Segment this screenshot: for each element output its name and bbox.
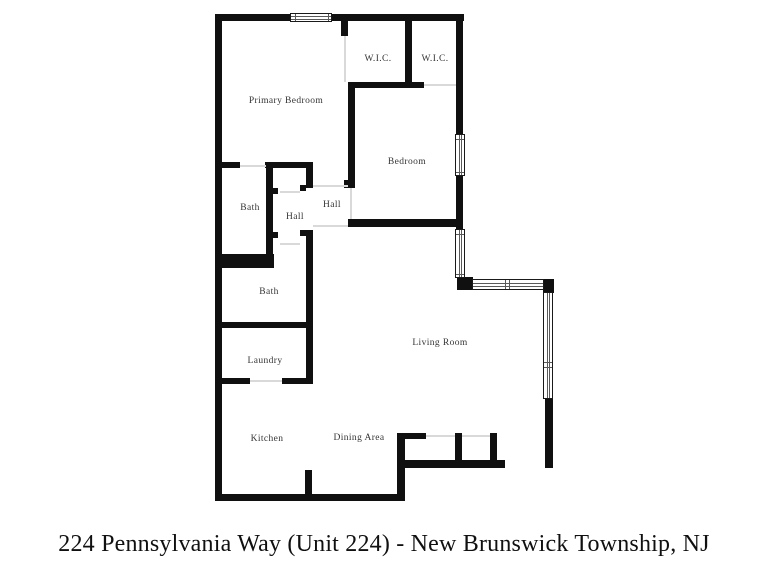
wall-segment <box>215 322 313 328</box>
room-label-bedroom: Bedroom <box>388 157 426 167</box>
door-threshold <box>250 380 282 382</box>
door-threshold <box>344 36 346 82</box>
door-threshold <box>240 165 266 167</box>
room-label-living-room: Living Room <box>412 338 467 348</box>
window-pane-line <box>295 14 296 21</box>
wall-segment <box>305 470 312 496</box>
window <box>290 13 332 22</box>
wall-segment <box>457 277 473 290</box>
window-pane-line <box>473 283 543 284</box>
wall-segment <box>341 21 348 36</box>
window-pane-line <box>456 139 464 140</box>
window-pane-line <box>328 14 329 21</box>
door-threshold <box>313 225 348 227</box>
window-pane-line <box>549 293 550 398</box>
wall-segment <box>273 232 278 238</box>
floorplan-canvas: Primary BedroomW.I.C.W.I.C.BedroomBathHa… <box>0 0 768 576</box>
wall-segment <box>545 398 553 468</box>
wall-segment <box>300 230 306 236</box>
wall-segment <box>306 230 313 384</box>
window-pane-line <box>473 286 543 287</box>
window-pane-line <box>456 234 464 235</box>
wall-segment <box>348 82 424 88</box>
window-pane-line <box>456 172 464 173</box>
window-pane-line <box>459 135 460 175</box>
window <box>543 292 553 399</box>
room-label-primary-bedroom: Primary Bedroom <box>249 96 323 106</box>
door-threshold <box>426 435 455 437</box>
window <box>472 279 544 290</box>
wall-segment <box>215 14 222 501</box>
window-pane-line <box>509 280 510 289</box>
wall-segment <box>543 279 554 293</box>
wall-segment <box>490 433 497 462</box>
room-label-w-i-c: W.I.C. <box>364 54 391 64</box>
window-pane-line <box>505 280 506 289</box>
wall-segment <box>300 185 306 191</box>
window-pane-line <box>547 293 548 398</box>
address-caption: 224 Pennsylvania Way (Unit 224) - New Br… <box>0 531 768 558</box>
wall-segment <box>215 378 250 384</box>
room-label-hall: Hall <box>323 200 341 210</box>
wall-segment <box>273 188 278 194</box>
room-label-kitchen: Kitchen <box>251 434 284 444</box>
room-label-w-i-c: W.I.C. <box>421 54 448 64</box>
window-pane-line <box>291 19 331 20</box>
wall-segment <box>215 14 464 21</box>
wall-segment <box>222 254 274 268</box>
wall-segment <box>348 82 355 188</box>
wall-segment <box>266 162 273 256</box>
wall-segment <box>306 162 313 188</box>
room-label-dining-area: Dining Area <box>333 433 384 443</box>
window-pane-line <box>461 230 462 277</box>
room-label-hall: Hall <box>286 212 304 222</box>
door-threshold <box>313 185 348 187</box>
door-threshold <box>350 188 352 219</box>
room-label-bath: Bath <box>240 203 260 213</box>
window-pane-line <box>291 16 331 17</box>
window-pane-line <box>544 362 552 363</box>
wall-segment <box>405 21 412 85</box>
wall-segment <box>402 460 505 468</box>
door-threshold <box>462 435 490 437</box>
window-pane-line <box>459 230 460 277</box>
window-pane-line <box>456 274 464 275</box>
wall-segment <box>397 433 426 439</box>
window <box>455 134 465 176</box>
wall-segment <box>348 219 463 227</box>
window-pane-line <box>461 135 462 175</box>
door-threshold <box>280 191 300 193</box>
floorplan-page: Primary BedroomW.I.C.W.I.C.BedroomBathHa… <box>0 0 768 576</box>
room-label-laundry: Laundry <box>248 356 283 366</box>
window <box>455 229 465 278</box>
door-threshold <box>424 84 456 86</box>
wall-segment <box>282 378 313 384</box>
wall-segment <box>215 162 240 168</box>
room-label-bath: Bath <box>259 287 279 297</box>
wall-segment <box>455 433 462 462</box>
window-pane-line <box>544 367 552 368</box>
door-threshold <box>280 243 300 245</box>
